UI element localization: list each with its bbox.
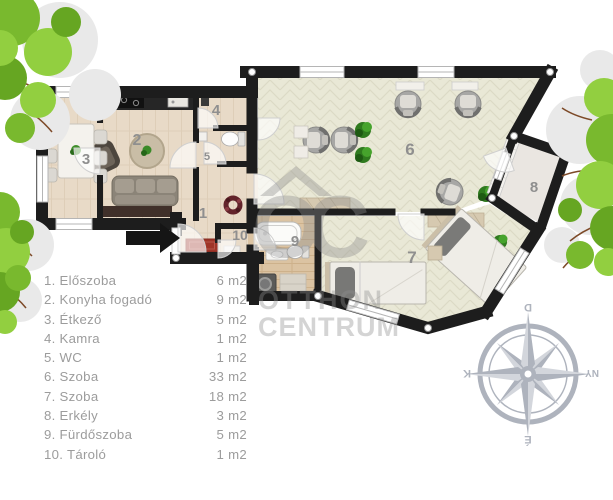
compass-label-left: K <box>463 367 471 379</box>
legend-item-1: 1. Előszoba 6 m2 <box>44 271 247 290</box>
legend-item-9: 9. Fürdőszoba 5 m2 <box>44 425 247 444</box>
legend-item-label: 7. Szoba <box>44 387 98 406</box>
wc-sink <box>198 132 207 141</box>
room-label-7: 7 <box>407 248 416 267</box>
legend-item-area: 18 m2 <box>209 387 247 406</box>
legend-item-area: 1 m2 <box>216 329 247 348</box>
legend-item-area: 6 m2 <box>216 271 247 290</box>
room-label-2: 2 <box>133 132 142 149</box>
legend-item-label: 4. Kamra <box>44 329 100 348</box>
watermark-line1: OTTHON <box>258 285 384 315</box>
legend-item-label: 2. Konyha fogadó <box>44 290 152 309</box>
legend-item-label: 10. Tároló <box>44 445 106 464</box>
legend-item-4: 4. Kamra 1 m2 <box>44 329 247 348</box>
legend-item-label: 5. WC <box>44 348 82 367</box>
legend-item-2: 2. Konyha fogadó 9 m2 <box>44 290 247 309</box>
room-label-1: 1 <box>199 205 207 222</box>
legend-item-label: 8. Erkély <box>44 406 98 425</box>
sofa <box>112 176 178 206</box>
legend-item-area: 1 m2 <box>216 348 247 367</box>
legend-item-label: 1. Előszoba <box>44 271 116 290</box>
compass-label-right: NY <box>585 367 599 378</box>
legend-item-label: 9. Fürdőszoba <box>44 425 132 444</box>
watermark-monogram: OC <box>252 177 368 276</box>
legend-item-5: 5. WC 1 m2 <box>44 348 247 367</box>
legend-item-6: 6. Szoba 33 m2 <box>44 367 247 386</box>
legend-item-area: 5 m2 <box>216 425 247 444</box>
room-label-3: 3 <box>82 151 90 168</box>
legend-item-label: 3. Étkező <box>44 310 102 329</box>
legend-item-7: 7. Szoba 18 m2 <box>44 387 247 406</box>
compass-label-top: D <box>524 301 532 313</box>
legend-item-3: 3. Étkező 5 m2 <box>44 310 247 329</box>
legend: 1. Előszoba 6 m2 2. Konyha fogadó 9 m2 3… <box>44 271 247 464</box>
toilet-wc <box>222 132 246 146</box>
room-label-5: 5 <box>204 151 210 163</box>
compass-rose: D NY É K <box>463 301 599 446</box>
compass-label-bottom: É <box>524 433 531 446</box>
legend-item-area: 5 m2 <box>216 310 247 329</box>
sideboard <box>100 206 172 217</box>
legend-item-area: 1 m2 <box>216 445 247 464</box>
room-label-6: 6 <box>405 140 414 159</box>
legend-item-10: 10. Tároló 1 m2 <box>44 445 247 464</box>
floorplan-page: D NY É K <box>0 0 613 500</box>
legend-item-area: 3 m2 <box>216 406 247 425</box>
nightstand <box>428 246 442 260</box>
legend-item-label: 6. Szoba <box>44 367 98 386</box>
room-label-8: 8 <box>530 179 538 196</box>
watermark-line2: CENTRUM <box>258 312 400 342</box>
legend-item-area: 33 m2 <box>209 367 247 386</box>
legend-item-8: 8. Erkély 3 m2 <box>44 406 247 425</box>
room-label-4: 4 <box>212 102 221 119</box>
legend-item-area: 9 m2 <box>216 290 247 309</box>
room-label-10: 10 <box>232 227 248 243</box>
